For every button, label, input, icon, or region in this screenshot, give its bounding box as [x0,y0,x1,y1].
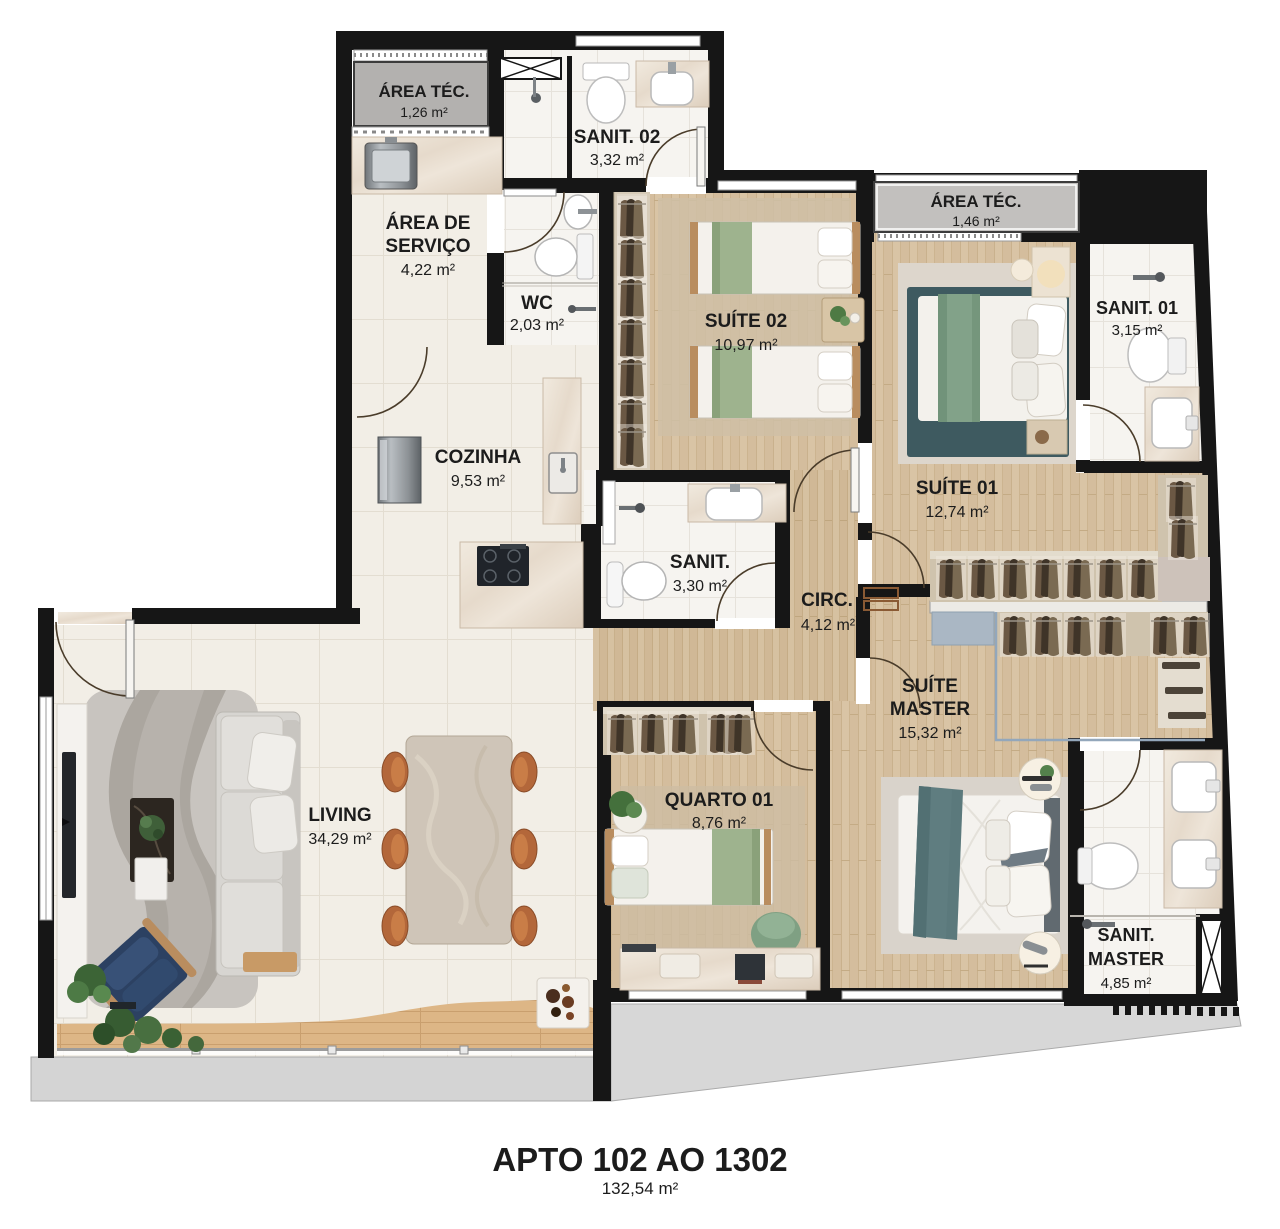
svg-text:4,22 m²: 4,22 m² [401,262,456,279]
svg-text:ÁREA DE: ÁREA DE [386,212,471,234]
svg-text:SUÍTE 02: SUÍTE 02 [705,310,787,332]
svg-text:LIVING: LIVING [308,805,371,826]
svg-text:9,53 m²: 9,53 m² [451,473,506,490]
svg-text:SANIT. 01: SANIT. 01 [1096,298,1178,318]
svg-text:132,54 m²: 132,54 m² [602,1179,679,1198]
svg-text:4,12 m²: 4,12 m² [801,617,856,634]
svg-text:QUARTO 01: QUARTO 01 [665,790,774,811]
svg-text:SUÍTE: SUÍTE [902,675,958,697]
svg-text:ÁREA TÉC.: ÁREA TÉC. [931,192,1022,211]
svg-text:1,46 m²: 1,46 m² [952,213,1000,229]
svg-text:COZINHA: COZINHA [435,447,522,468]
svg-text:SANIT.: SANIT. [670,552,730,573]
svg-text:3,15 m²: 3,15 m² [1112,322,1163,339]
svg-text:SERVIÇO: SERVIÇO [385,236,470,257]
svg-text:8,76 m²: 8,76 m² [692,815,747,832]
svg-text:15,32 m²: 15,32 m² [898,725,962,742]
svg-text:ÁREA TÉC.: ÁREA TÉC. [379,82,470,101]
svg-text:12,74 m²: 12,74 m² [925,504,989,521]
svg-text:SUÍTE 01: SUÍTE 01 [916,477,999,499]
svg-text:SANIT. 02: SANIT. 02 [574,127,661,148]
svg-text:MASTER: MASTER [1088,949,1164,969]
svg-text:4,85 m²: 4,85 m² [1101,975,1152,992]
svg-text:APTO 102 AO 1302: APTO 102 AO 1302 [492,1141,787,1178]
svg-text:2,03 m²: 2,03 m² [510,317,565,334]
svg-text:3,32 m²: 3,32 m² [590,152,645,169]
svg-text:34,29 m²: 34,29 m² [308,831,372,848]
svg-text:3,30 m²: 3,30 m² [673,578,728,595]
svg-text:SANIT.: SANIT. [1097,925,1154,945]
svg-text:MASTER: MASTER [890,699,971,720]
svg-text:10,97 m²: 10,97 m² [714,337,778,354]
svg-text:1,26 m²: 1,26 m² [400,104,448,120]
svg-text:CIRC.: CIRC. [801,590,853,611]
svg-text:WC: WC [521,293,553,314]
